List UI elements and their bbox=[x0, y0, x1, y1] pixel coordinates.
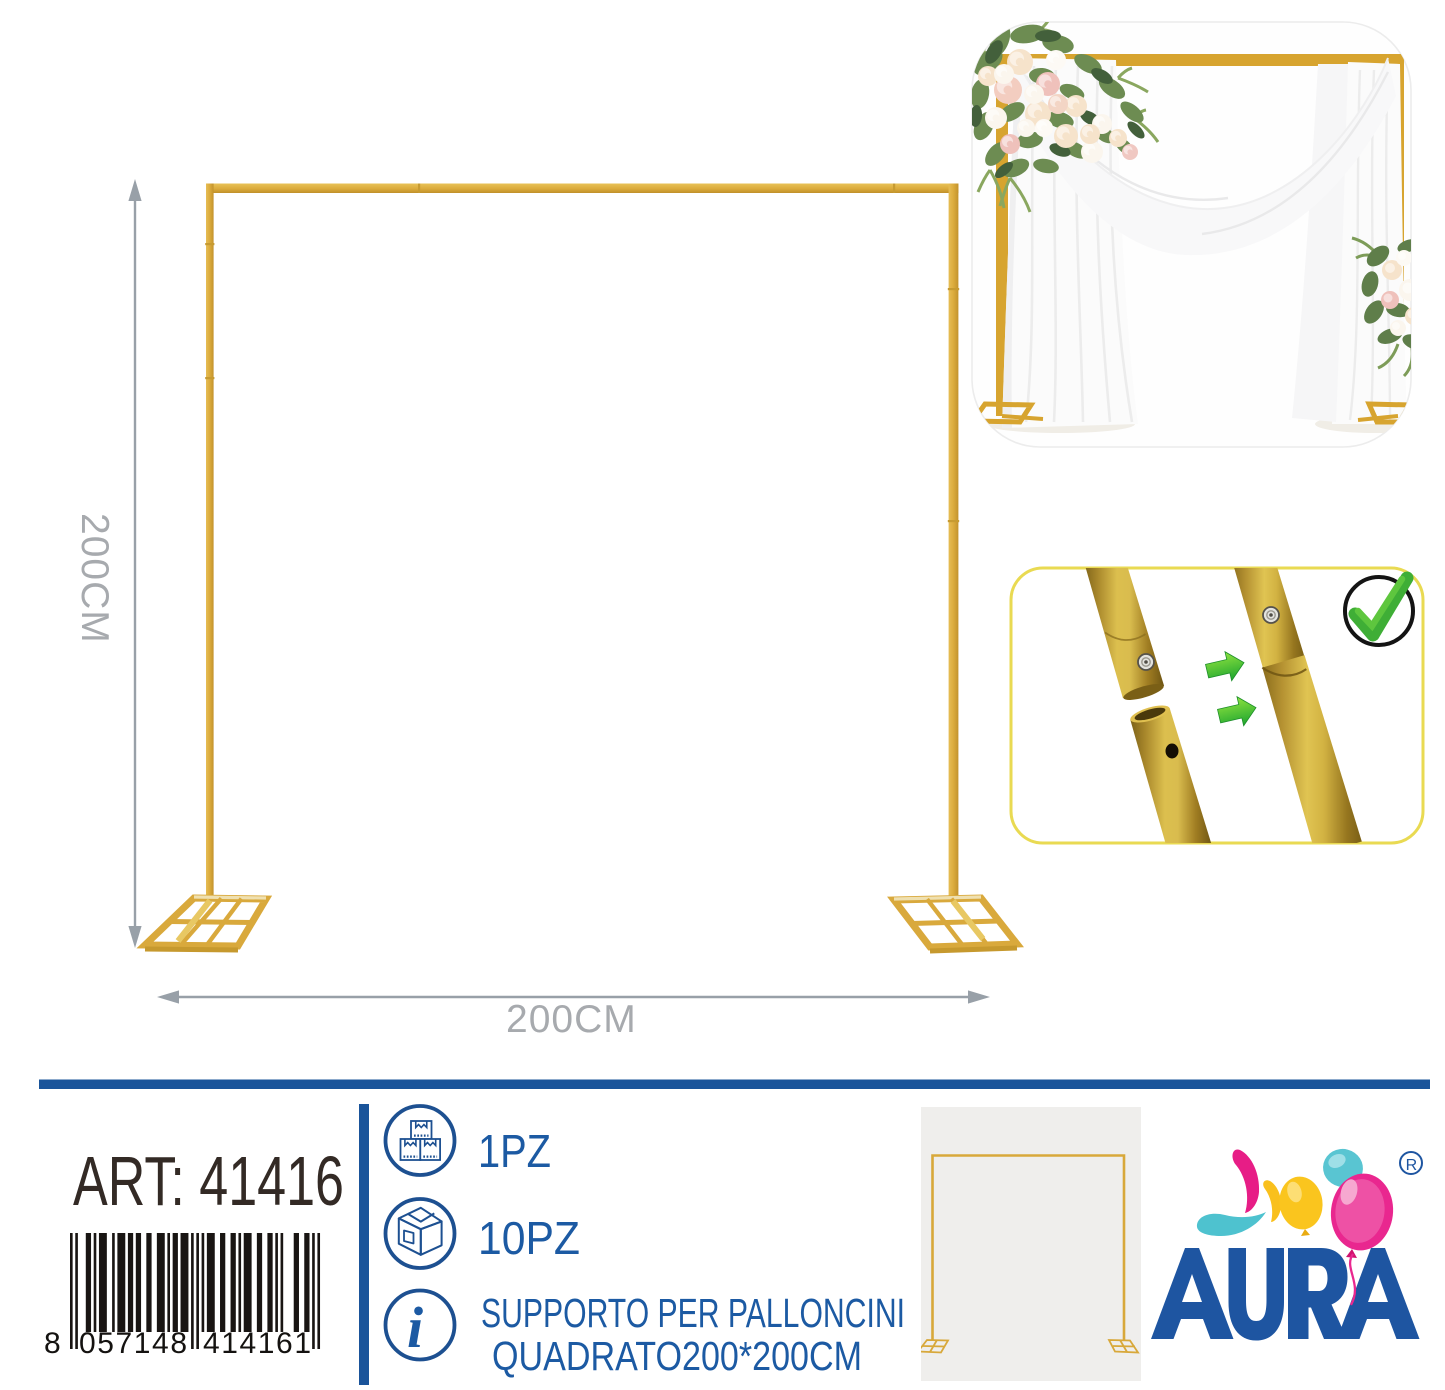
svg-text:R: R bbox=[1406, 1157, 1418, 1174]
svg-text:1PZ: 1PZ bbox=[478, 1125, 551, 1177]
svg-text:057148: 057148 bbox=[79, 1327, 187, 1360]
svg-text:QUADRATO200*200CM: QUADRATO200*200CM bbox=[492, 1333, 862, 1379]
svg-text:200CM: 200CM bbox=[73, 513, 116, 644]
svg-text:SUPPORTO PER PALLONCINI: SUPPORTO PER PALLONCINI bbox=[481, 1290, 905, 1336]
svg-text:8: 8 bbox=[44, 1327, 61, 1360]
svg-text:ART: 41416: ART: 41416 bbox=[73, 1142, 344, 1220]
svg-text:10PZ: 10PZ bbox=[478, 1212, 580, 1264]
svg-text:414161: 414161 bbox=[203, 1327, 311, 1360]
svg-text:200CM: 200CM bbox=[506, 998, 637, 1041]
svg-text:i: i bbox=[407, 1295, 423, 1360]
